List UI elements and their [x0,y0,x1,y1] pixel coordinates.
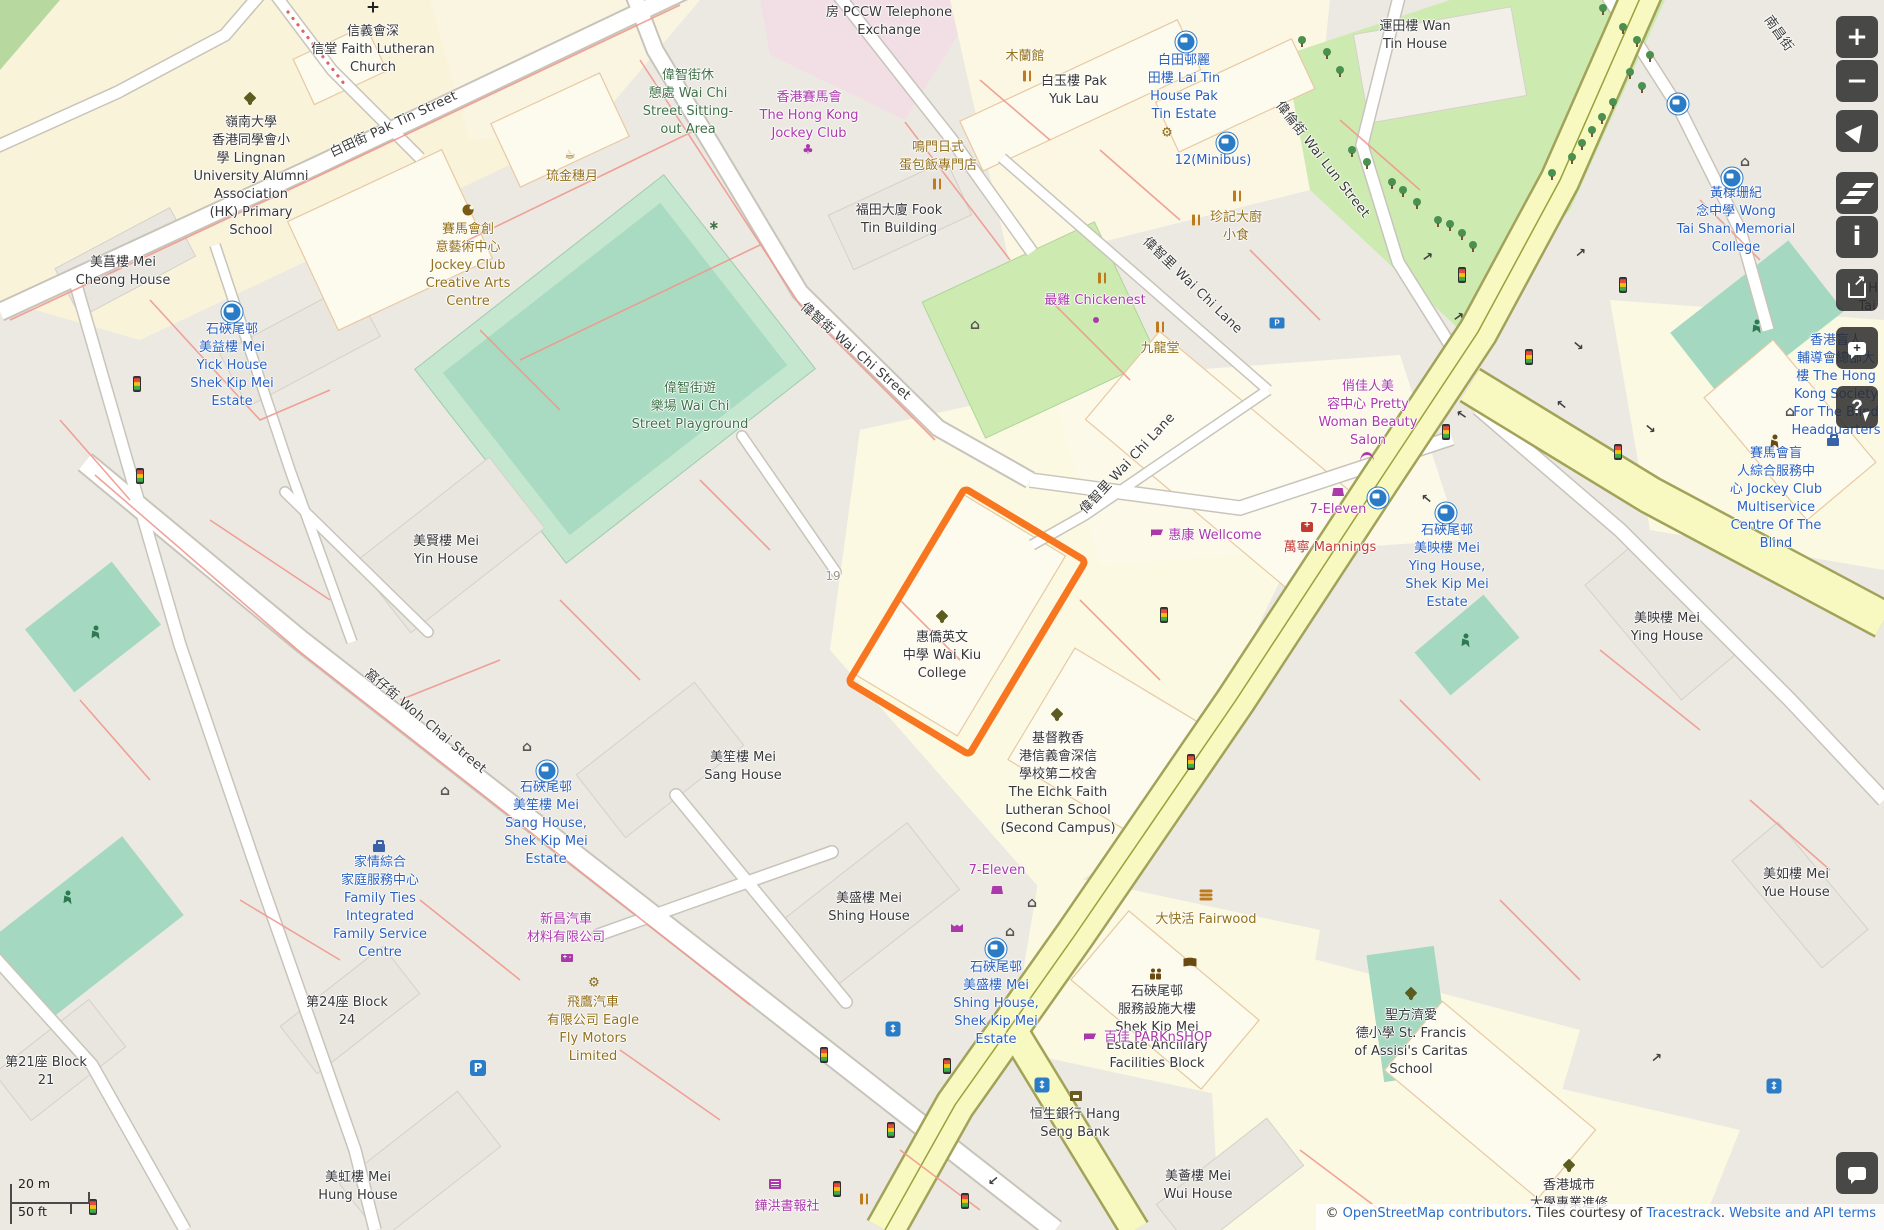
attribution-text: . Tiles courtesy of [1528,1206,1647,1221]
osm-contributors-link[interactable]: OpenStreetMap contributors [1343,1206,1528,1221]
terms-link[interactable]: Website and API terms [1729,1206,1876,1221]
map-canvas[interactable]: 白田街 Pak Tin Street偉智街 Wai Chi Street偉智里 … [0,0,1884,1230]
map-key-button[interactable]: i [1836,216,1878,258]
feedback-button[interactable] [1836,1152,1878,1194]
share-button[interactable] [1836,269,1878,311]
layers-icon [1846,191,1868,196]
show-my-location-icon [1845,119,1870,143]
feedback-icon [1848,1167,1866,1180]
tracestrack-link[interactable]: Tracestrack [1646,1206,1720,1221]
attribution: © OpenStreetMap contributors. Tiles cour… [1316,1204,1884,1230]
add-note-button[interactable]: + [1836,327,1878,369]
scale-tick-imperial [70,1204,72,1214]
scale-metric: 20 m [18,1176,50,1191]
share-icon [1848,282,1866,298]
zoom-out-button[interactable]: − [1836,60,1878,102]
query-features-icon: ? [1851,398,1863,417]
show-my-location-button[interactable] [1836,110,1878,152]
scale-tick-metric [88,1192,90,1202]
attribution-text: . [1721,1206,1729,1221]
attribution-text: © [1326,1206,1343,1221]
map-tiles [0,0,1884,1230]
scale-bar: 20 m 50 ft [10,1180,130,1226]
scale-tick [10,1184,12,1224]
scale-imperial: 50 ft [18,1204,47,1219]
layers-button[interactable] [1836,172,1878,214]
zoom-in-button[interactable]: + [1836,16,1878,58]
query-features-button[interactable]: ? [1836,386,1878,428]
add-note-icon: + [1848,342,1866,355]
